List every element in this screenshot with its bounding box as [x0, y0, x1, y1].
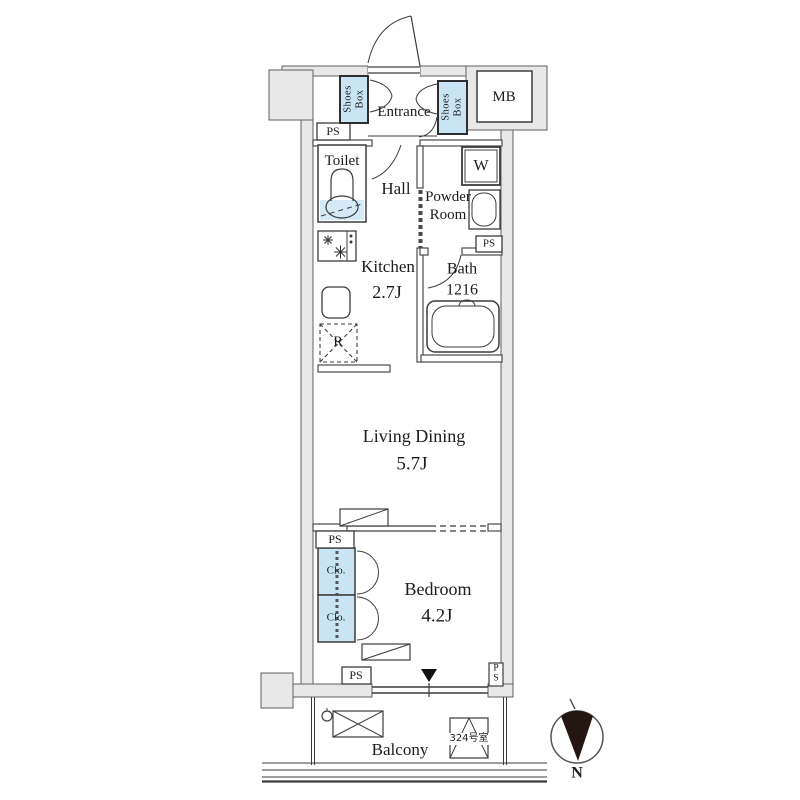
- bath-fixtures: [427, 300, 499, 352]
- pipe-space-box-top: [317, 123, 350, 140]
- floor-plan-drawing: [0, 0, 800, 800]
- wash-basin: [469, 190, 500, 229]
- bath-door-arc: [428, 255, 461, 288]
- balcony-railing-lines: [262, 763, 547, 777]
- kitchen-sink: [322, 287, 350, 318]
- door-leaf: [411, 16, 420, 66]
- washing-machine-box: [462, 147, 500, 185]
- entrance-opening: [368, 64, 420, 76]
- shoes-box-left-door-arc: [370, 80, 392, 112]
- wall-bottom-left-segment: [293, 684, 372, 697]
- shoes-box-right: [438, 81, 467, 134]
- hall-corner-arc: [419, 117, 437, 137]
- closet-lower-door-arc: [357, 597, 378, 640]
- stove-knob-2: [350, 241, 353, 244]
- pipe-space-box-living: [316, 531, 354, 548]
- compass-tick: [570, 699, 575, 709]
- shoes-box-left: [340, 76, 368, 123]
- closet-upper-door-arc: [357, 551, 379, 594]
- outer-walls: [261, 66, 547, 708]
- wall-top-left-block: [269, 70, 313, 120]
- refrigerator-space: [320, 324, 357, 362]
- stove-burner-1: [323, 235, 333, 245]
- compass: [551, 699, 603, 763]
- powder-room-fixtures: [421, 147, 501, 248]
- sliding-doors: [340, 509, 488, 660]
- shoes-box-right-door-arc: [416, 84, 437, 114]
- balcony-faucet-icon: [322, 711, 332, 721]
- entry-triangle-marker: [421, 669, 437, 682]
- pipe-space-box-vertical: [489, 663, 503, 686]
- slider-track-solid: [347, 526, 430, 531]
- compass-needle-icon: [561, 711, 593, 762]
- slider-track-dashed: [430, 526, 488, 531]
- refrigerator-cross: [320, 324, 357, 362]
- wall-kitchen-living-left: [318, 365, 390, 372]
- meter-box: [477, 71, 532, 122]
- wall-bottom-left-block: [261, 673, 293, 708]
- entrance-door: [368, 16, 420, 76]
- pipe-space-box-bath: [476, 236, 502, 252]
- bedroom-window: [372, 669, 488, 697]
- wall-left-column: [301, 120, 313, 684]
- toilet-room: [318, 145, 366, 222]
- door-swing-arc: [368, 16, 411, 63]
- stove-knob-1: [350, 235, 353, 238]
- balcony-drawing: [262, 697, 547, 782]
- pipe-space-box-bedroom: [342, 667, 371, 684]
- wall-living-bedroom-right: [488, 524, 501, 531]
- wall-hall-powder-upper: [417, 146, 423, 188]
- wall-bath-living: [421, 355, 502, 362]
- floor-plan: Entrance Hall Toilet Powder Room Kitchen…: [0, 0, 800, 800]
- neighbor-unit-box: [450, 718, 488, 758]
- wall-right-column: [501, 130, 513, 686]
- balcony-right-wall: [504, 697, 507, 765]
- window-lines: [372, 687, 488, 693]
- wall-powder-top: [420, 140, 502, 146]
- balcony-left-wall: [312, 697, 315, 765]
- kitchen-fixtures: [318, 231, 357, 362]
- wall-powder-bath-left: [420, 248, 428, 255]
- wall-kitchen-bath-divider: [417, 248, 423, 362]
- toilet-door-arc: [372, 145, 401, 179]
- closets: [318, 548, 379, 642]
